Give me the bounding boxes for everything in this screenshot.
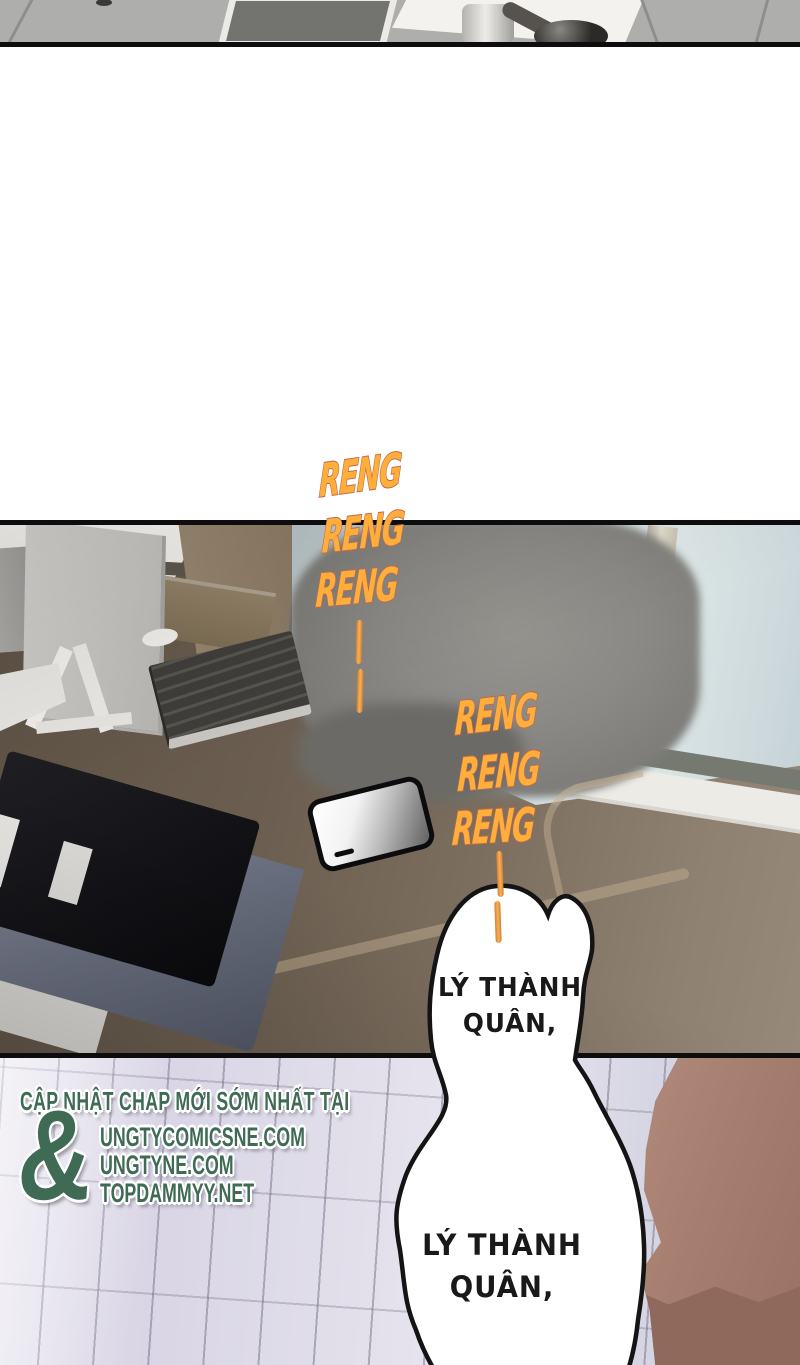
speech-line: LÝ THÀNH — [407, 1224, 597, 1266]
speech-line: QUÂN, — [425, 1006, 596, 1042]
floor-tile-line — [4, 0, 36, 42]
laptop-sticker — [48, 841, 93, 905]
chair-frame — [217, 0, 398, 42]
watermark-site-link: UNGTYCOMICSNE.COM — [100, 1122, 305, 1153]
sfx-ring-text: RENG — [454, 687, 538, 742]
floor-tile-line — [752, 0, 771, 42]
sfx-ring-text: RENG — [457, 745, 541, 798]
speech-line: QUÂN, — [407, 1266, 597, 1308]
sfx-tail-dash — [356, 669, 363, 713]
laptop-edge-highlight — [0, 813, 20, 887]
floor-object — [96, 0, 112, 6]
watermark-ampersand: & — [15, 1106, 96, 1206]
sfx-ring-text: RENG — [321, 505, 405, 560]
floor-tile-line — [637, 0, 661, 42]
watermark-site-link: TOPDAMMYY.NET — [100, 1178, 254, 1209]
watermark-site-link: UNGTYNE.COM — [100, 1150, 234, 1181]
speech-text: LÝ THÀNH QUÂN, — [407, 1224, 597, 1308]
speech-text: LÝ THÀNH QUÂN, — [425, 970, 596, 1042]
phone-camera-pill — [334, 848, 355, 858]
comic-page: CẬP NHẬT CHAP MỚI SỚM NHẤT TẠI & UNGTYCO… — [0, 0, 800, 1365]
sfx-ring-text: RENG — [319, 446, 402, 504]
speech-line: LÝ THÀNH — [425, 970, 596, 1006]
sfx-ring-text: RENG — [451, 801, 535, 852]
sfx-tail-dash — [355, 620, 362, 664]
sfx-ring-text: RENG — [315, 561, 399, 614]
panel-border — [0, 42, 800, 47]
top-panel — [0, 0, 800, 42]
